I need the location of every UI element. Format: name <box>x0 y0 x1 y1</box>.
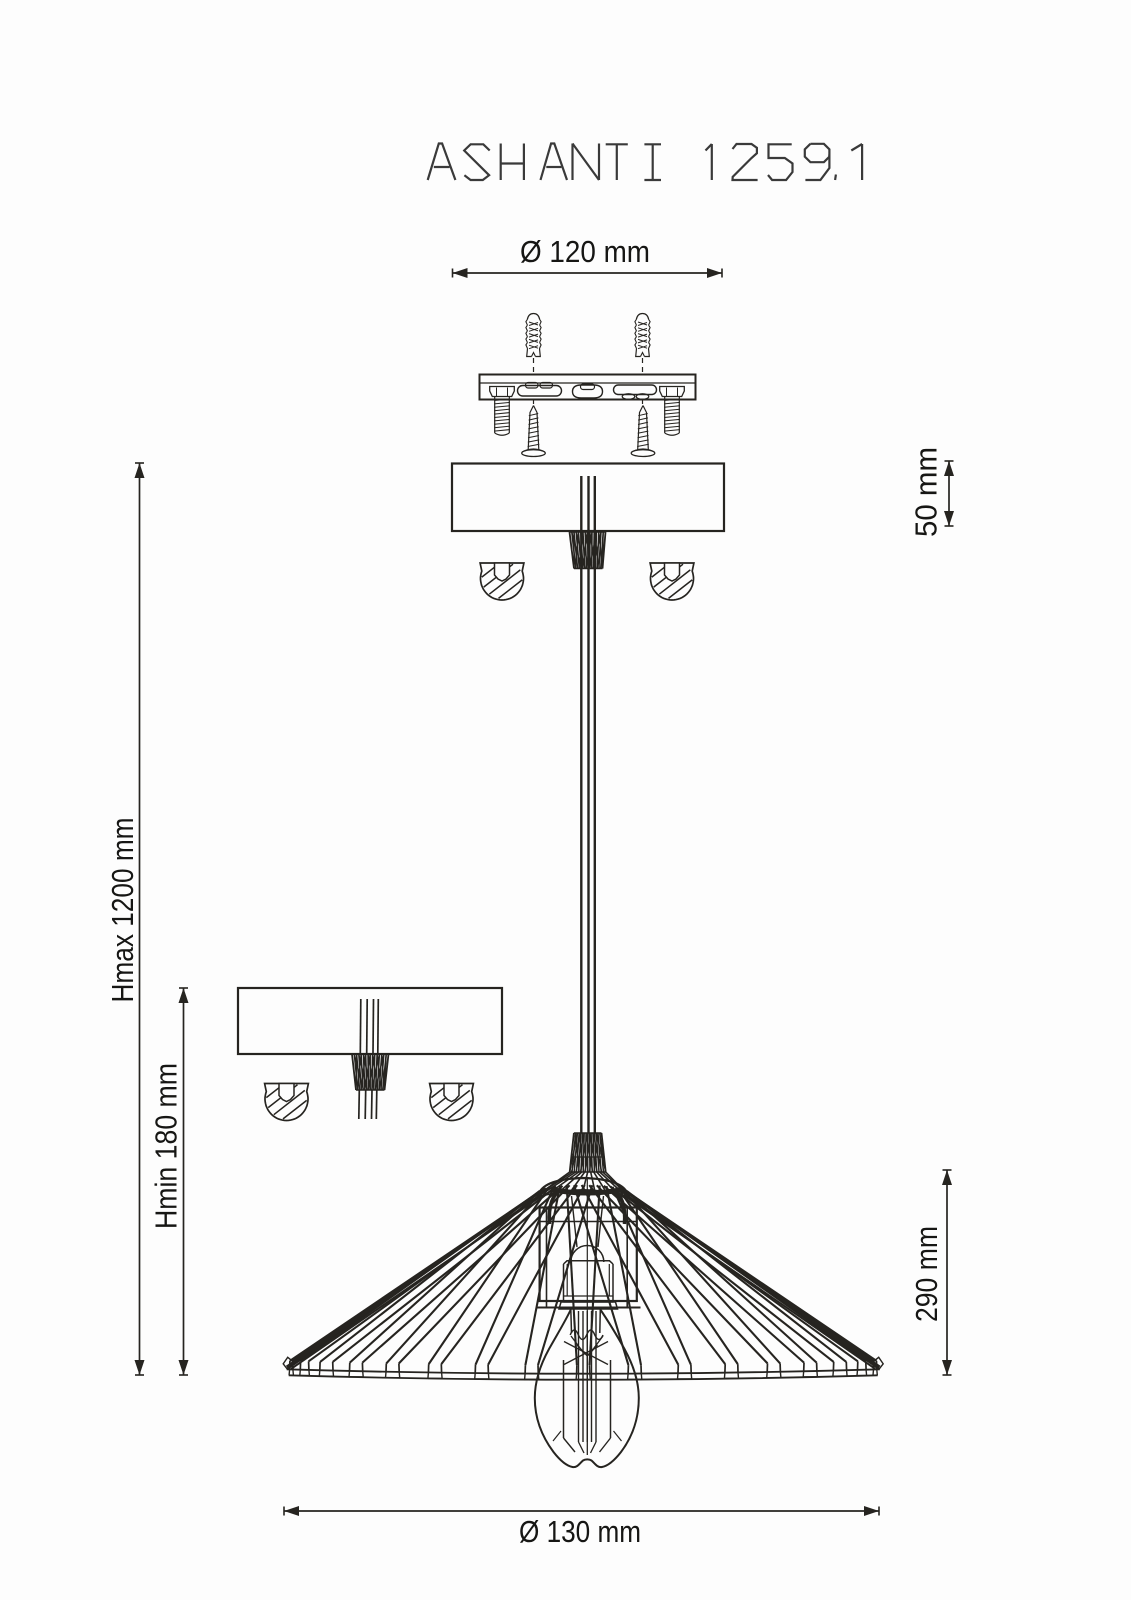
svg-text:Hmax 1200 mm: Hmax 1200 mm <box>106 818 140 1003</box>
svg-text:Ø 120 mm: Ø 120 mm <box>520 235 650 269</box>
svg-text:Hmin 180 mm: Hmin 180 mm <box>150 1063 184 1229</box>
svg-text:50 mm: 50 mm <box>910 447 944 537</box>
svg-text:290 mm: 290 mm <box>910 1226 944 1322</box>
svg-text:Ø 130 mm: Ø 130 mm <box>519 1515 641 1549</box>
